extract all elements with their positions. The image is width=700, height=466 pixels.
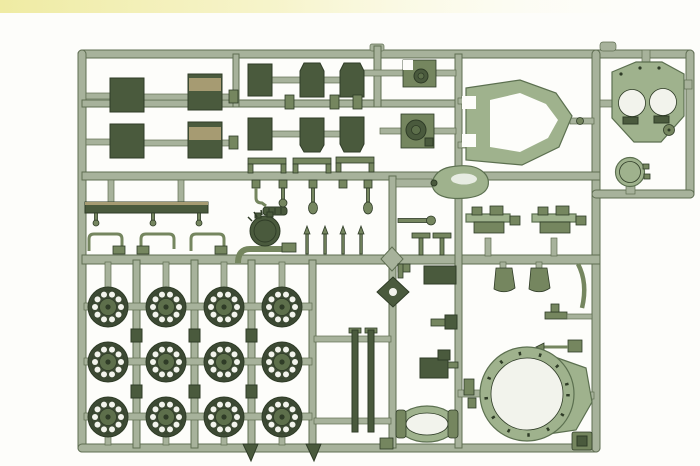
hatch-panel bbox=[110, 124, 144, 158]
sprue-photo bbox=[0, 0, 700, 466]
part-stub bbox=[108, 180, 114, 202]
road-wheel bbox=[204, 287, 244, 327]
mud-flap bbox=[494, 268, 515, 292]
mud-flap bbox=[529, 268, 550, 292]
road-wheel bbox=[88, 397, 128, 437]
runner-nub bbox=[189, 329, 200, 342]
angled-plate bbox=[340, 63, 364, 97]
hanging-nub bbox=[364, 180, 372, 188]
runner-nub bbox=[246, 329, 257, 342]
vertical-runner bbox=[374, 46, 381, 107]
part-stub bbox=[600, 100, 612, 107]
road-wheel bbox=[204, 342, 244, 382]
part-stub bbox=[396, 179, 432, 187]
middle-runner bbox=[82, 172, 600, 180]
hatch-hinge bbox=[644, 174, 650, 179]
road-wheel bbox=[262, 342, 302, 382]
hatch-panel-tan-stripe bbox=[189, 127, 221, 140]
top-rail bbox=[78, 50, 694, 58]
filler-cap-dot bbox=[668, 129, 671, 132]
center-vertical-runner bbox=[455, 54, 462, 448]
runner-nub bbox=[189, 385, 200, 398]
hanging-nub bbox=[252, 180, 260, 188]
grille-detail bbox=[654, 116, 669, 123]
mantlet-hub bbox=[418, 73, 424, 79]
headlight-tip bbox=[431, 180, 437, 186]
headlight-part bbox=[431, 166, 488, 199]
road-wheel bbox=[146, 287, 186, 327]
kite-hole bbox=[389, 288, 397, 296]
part-stub bbox=[485, 238, 491, 256]
runner-clip bbox=[353, 95, 362, 109]
barrel-rod bbox=[352, 330, 358, 432]
engine-deck-plate-part bbox=[612, 62, 684, 142]
hatch-hinge bbox=[643, 164, 649, 169]
bolt-dot bbox=[619, 72, 622, 75]
runner-nub bbox=[246, 385, 257, 398]
bottom-rail bbox=[78, 444, 600, 452]
road-wheel bbox=[146, 342, 186, 382]
angled-plate bbox=[300, 118, 324, 152]
periscope-lens-center bbox=[412, 126, 421, 135]
mantlet-notch bbox=[403, 60, 413, 70]
left-rail bbox=[78, 50, 86, 452]
road-wheel bbox=[146, 397, 186, 437]
road-wheel bbox=[88, 342, 128, 382]
grille-detail bbox=[623, 117, 638, 124]
hanging-nub bbox=[309, 180, 317, 188]
outer-right-rail bbox=[686, 50, 694, 198]
hatch-panel-tan-stripe bbox=[189, 78, 221, 91]
part-stub bbox=[178, 180, 184, 202]
sprue-scene bbox=[0, 0, 700, 466]
fan-opening bbox=[619, 90, 646, 117]
periscope-detail bbox=[425, 138, 433, 146]
hanging-nub bbox=[279, 180, 287, 188]
road-wheel bbox=[88, 287, 128, 327]
rect-box-part bbox=[424, 266, 456, 284]
corner-pad-part bbox=[572, 432, 592, 450]
bolt-dot bbox=[638, 66, 641, 69]
vertical-runner bbox=[389, 176, 396, 448]
runner-nub bbox=[131, 385, 142, 398]
angled-plate bbox=[340, 117, 364, 152]
road-wheel bbox=[262, 397, 302, 437]
part-stub bbox=[684, 80, 692, 89]
barrel-rod bbox=[368, 330, 374, 432]
runner-clip bbox=[330, 95, 339, 109]
runner-clip bbox=[229, 90, 238, 103]
road-wheel bbox=[204, 397, 244, 437]
rail-nub bbox=[600, 42, 616, 51]
angled-plate bbox=[300, 63, 324, 97]
hanging-nub bbox=[339, 180, 347, 188]
hull-frame-notch bbox=[462, 134, 476, 147]
fan-opening bbox=[650, 89, 677, 116]
hatch-panel bbox=[110, 78, 144, 112]
road-wheel bbox=[262, 287, 302, 327]
bolt-dot bbox=[657, 66, 660, 69]
part-stub bbox=[626, 186, 635, 194]
runner-clip bbox=[229, 136, 238, 149]
fuel-tank-part bbox=[396, 406, 458, 442]
turret-ring-opening bbox=[491, 358, 563, 430]
headlight-highlight bbox=[451, 174, 477, 185]
top-yellow-band bbox=[0, 0, 700, 13]
small-plate bbox=[248, 64, 272, 96]
small-plate bbox=[248, 118, 272, 150]
l-bracket-leg bbox=[398, 264, 403, 278]
small-block-part bbox=[445, 315, 457, 329]
right-loop-bottom-runner bbox=[592, 190, 694, 198]
hull-frame-notch bbox=[462, 96, 476, 109]
lower-runner bbox=[82, 255, 600, 264]
stub-ball bbox=[577, 118, 584, 125]
rail-junction-nub bbox=[380, 438, 393, 449]
cupola-base-tab bbox=[282, 243, 296, 252]
runner-clip bbox=[285, 95, 294, 109]
runner-nub bbox=[131, 329, 142, 342]
part-stub bbox=[551, 238, 557, 256]
